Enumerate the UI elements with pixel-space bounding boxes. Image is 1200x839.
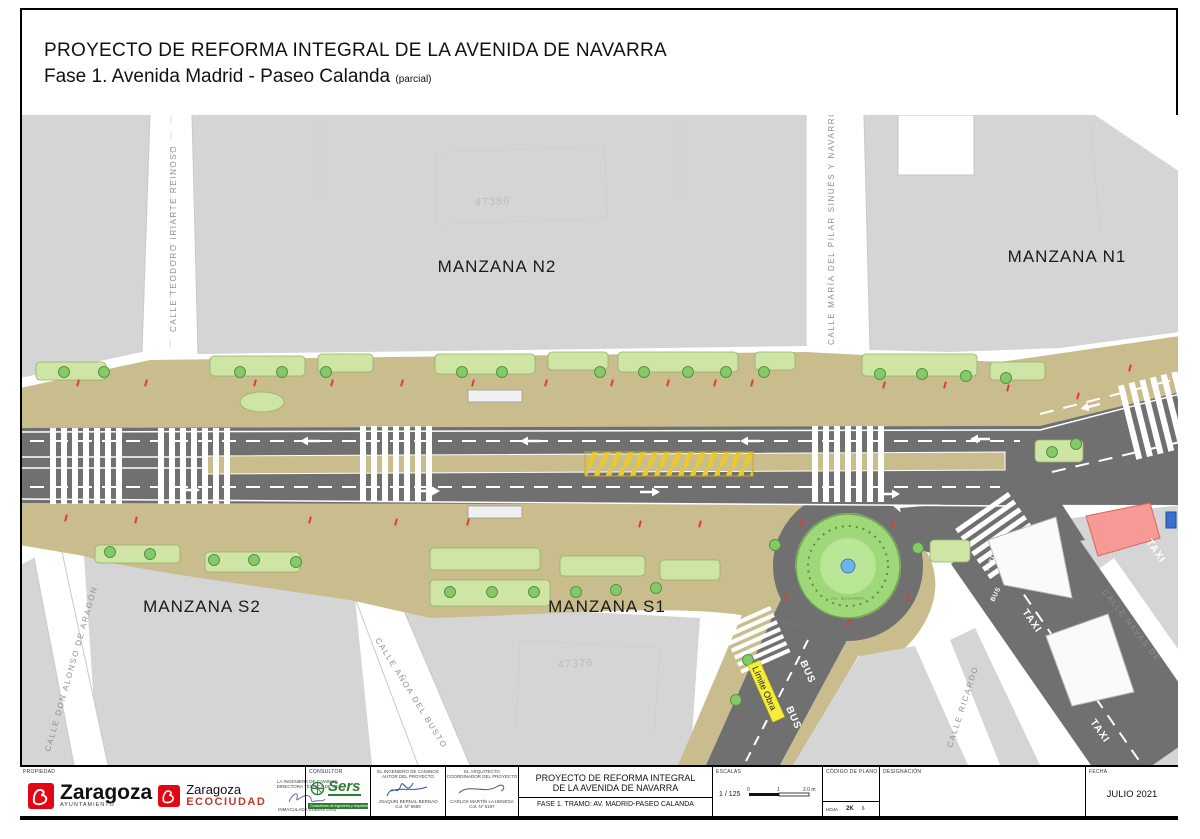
escalas-label: ESCALAS [716, 769, 741, 775]
zaragoza-shield-icon [28, 783, 54, 809]
ingeniero-title2: AUTOR DEL PROYECTO [371, 774, 445, 779]
street-label-teodoro: CALLE TEODORO IRIARTE REINOSO [169, 145, 178, 332]
ecociudad-sub: ECOCIUDAD [186, 796, 266, 808]
ingeniero-cell: EL INGENIERO DE CAMINOS AUTOR DEL PROYEC… [370, 767, 445, 816]
hoja-label: HOJA [826, 807, 838, 812]
sers-subtitle: Consultores de Ingeniería y Arquitectura… [308, 803, 368, 809]
street-label-pilar: CALLE MARÍA DEL PILAR SINUÉS Y NAVARRO [827, 109, 836, 345]
sers-name: Sers [328, 780, 361, 796]
scale-tick-2: 2.0 m [803, 787, 816, 793]
hoja-num: 6 [862, 806, 865, 812]
taxi-sign-icon [1166, 512, 1176, 528]
designacion-cell: DESIGNACIÓN [879, 767, 1085, 816]
sers-logo-icon [310, 781, 325, 796]
roundabout: AV. NAVARRA [796, 514, 900, 618]
label-manzana-s2: MANZANA S2 [143, 597, 261, 616]
arquitecto-col: Col. Nº 5197 [446, 804, 518, 809]
propiedad-cell: PROPIEDAD Zaragoza AYUNTAMIENTO Zaragoza… [20, 767, 305, 816]
label-manzana-s1: MANZANA S1 [548, 597, 666, 616]
roundabout-label: AV. NAVARRA [831, 596, 865, 601]
arquitecto-cell: EL ARQUITECTO COORDINADOR DEL PROYECTO C… [445, 767, 518, 816]
hoja-value: 2K [846, 806, 854, 812]
fecha-label: FECHA [1089, 769, 1107, 775]
ayuntamiento-name: Zaragoza [60, 783, 152, 802]
fecha-value: JULIO 2021 [1086, 789, 1178, 800]
propiedad-label: PROPIEDAD [23, 769, 55, 775]
consultor-label: CONSULTOR [309, 769, 343, 775]
arquitecto-title2: COORDINADOR DEL PROYECTO [446, 774, 518, 779]
arquitecto-signature [456, 780, 508, 798]
consultor-cell: CONSULTOR Sers Consultores de Ingeniería… [305, 767, 370, 816]
designacion-label: DESIGNACIÓN [883, 769, 921, 775]
title-block: PROPIEDAD Zaragoza AYUNTAMIENTO Zaragoza… [20, 765, 1178, 820]
project-line2: DE LA AVENIDA DE NAVARRA [519, 783, 712, 793]
project-line1: PROYECTO DE REFORMA INTEGRAL [519, 773, 712, 783]
fecha-cell: FECHA JULIO 2021 [1085, 767, 1178, 816]
parcel-number-north: 47386 [475, 195, 511, 209]
escalas-cell: ESCALAS 1 / 125 0 1 2.0 m [712, 767, 822, 816]
escala-value: 1 / 125 [719, 791, 740, 798]
plan-drawing: AV. NAVARRA BUS BUS TAXI TAXI TAXI TAXI … [0, 0, 1200, 839]
project-line3: FASE 1. TRAMO: AV. MADRID-PASEO CALANDA [519, 797, 712, 808]
label-manzana-n2: MANZANA N2 [438, 257, 557, 276]
ecociudad-name: Zaragoza [186, 784, 266, 796]
scale-tick-0: 0 [747, 787, 750, 793]
ingeniero-signature [383, 780, 433, 798]
project-title-cell: PROYECTO DE REFORMA INTEGRAL DE LA AVENI… [518, 767, 712, 816]
codigo-label: CÓDIGO DE PLANO [826, 769, 877, 775]
scale-bar: 0 1 2.0 m [745, 784, 817, 802]
label-manzana-n1: MANZANA N1 [1008, 247, 1127, 266]
parcel-number-south: 47376 [558, 657, 594, 671]
ecociudad-shield-icon [158, 785, 180, 807]
codigo-cell: CÓDIGO DE PLANO HOJA 2K 6 [822, 767, 879, 816]
scale-tick-1: 1 [777, 787, 780, 793]
ingeniero-col: Col. Nº 9980 [371, 804, 445, 809]
